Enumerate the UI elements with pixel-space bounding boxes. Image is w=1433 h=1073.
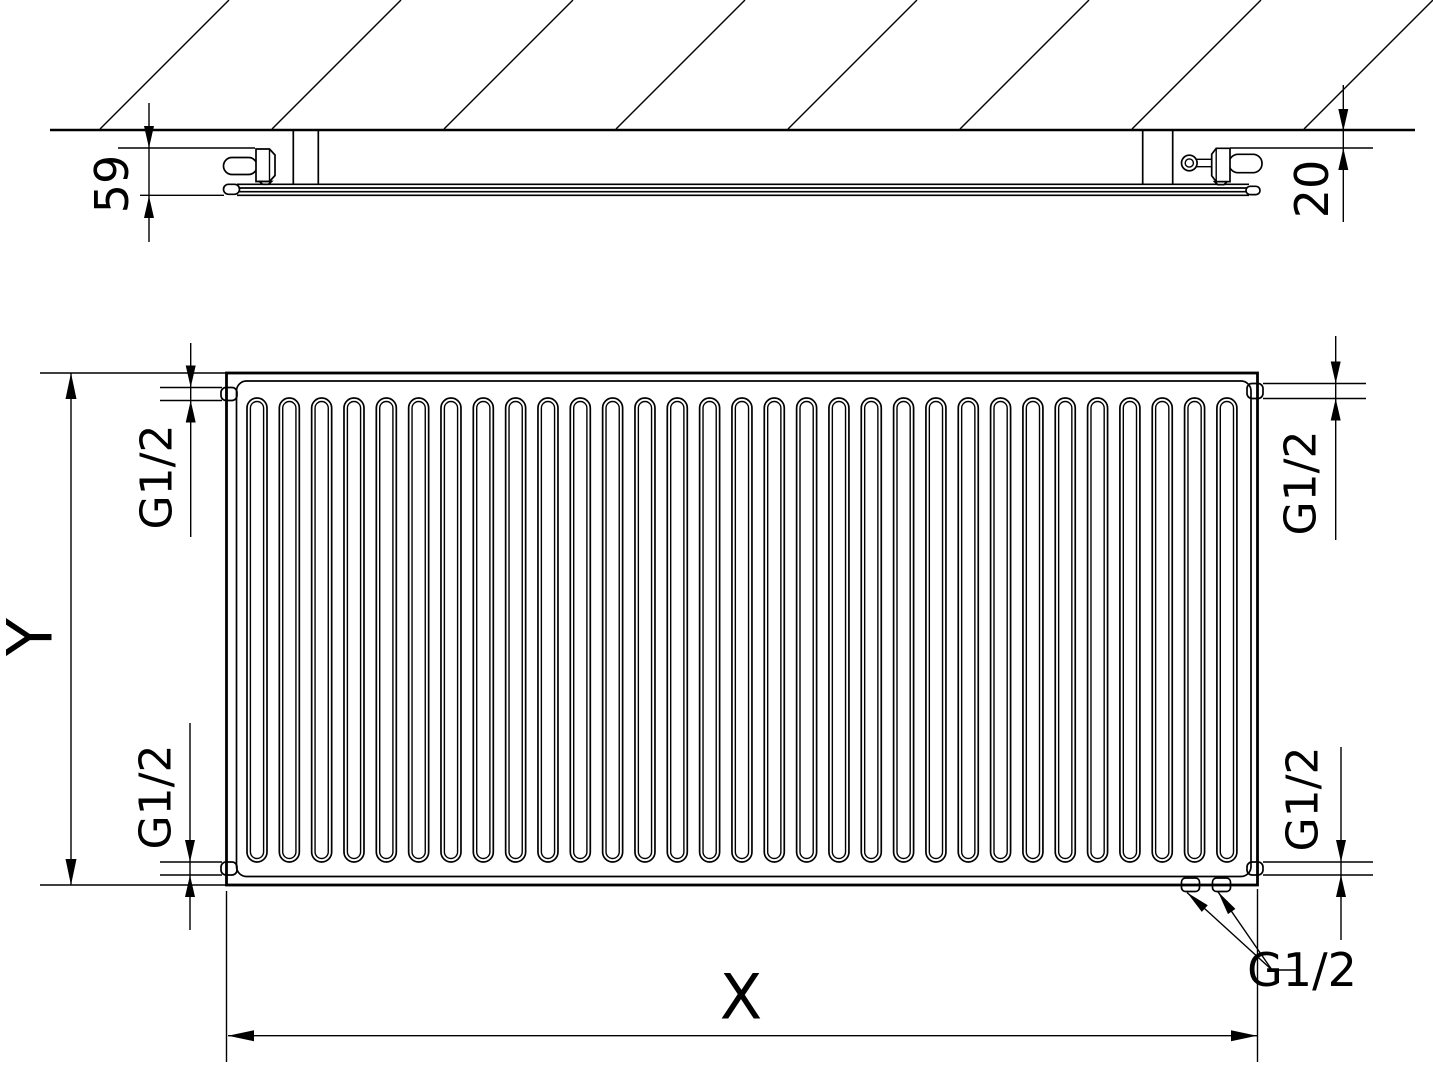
panel-rib-inner [865, 402, 878, 859]
stub-top-left [221, 388, 237, 401]
panel-rib-inner [994, 402, 1007, 859]
left-valve-neck [260, 182, 272, 185]
panel-rib-inner [574, 402, 587, 859]
vent-screw-inner [1185, 159, 1193, 167]
dim-y-arrow-bottom [66, 859, 77, 885]
dim-x-arrow-right [1231, 1030, 1257, 1041]
dim-thread-bottom-left: G1/2 [131, 723, 223, 930]
panel-rib-inner [541, 402, 554, 859]
wall-hatch [100, 0, 1433, 129]
thread-top-right-label: G1/2 [1276, 431, 1327, 536]
panel-left-end-tab [224, 184, 240, 194]
panel-rib-inner [412, 402, 425, 859]
panel-rib-inner [1220, 402, 1233, 859]
panel-rib-inner [380, 402, 393, 859]
dim-20-arrow-top [1338, 109, 1348, 131]
dim-59-arrow-top [144, 126, 154, 148]
panel-right-end-tab [1246, 186, 1260, 194]
dim-thread-bottom-right: G1/2 [1263, 747, 1373, 940]
panel-rib-inner [800, 402, 813, 859]
panel-rib-inner [315, 402, 328, 859]
dim-20-label: 20 [1285, 160, 1339, 219]
panel-rib-inner [347, 402, 360, 859]
front-view: Y X G1/2 G1/2 [0, 336, 1373, 1062]
dim-59-arrow-bottom [144, 196, 154, 218]
panel-rib-inner [768, 402, 781, 859]
thread-bottom-right-label: G1/2 [1278, 747, 1329, 852]
panel-rib-inner [832, 402, 845, 859]
right-bracket [1143, 131, 1173, 184]
right-valve-neck [1215, 182, 1227, 185]
panel-rib-inner [703, 402, 716, 859]
radiator-outline [227, 373, 1258, 885]
panel-rib-inner [1059, 402, 1072, 859]
left-valve [224, 149, 276, 184]
leader-arrow-right [1218, 892, 1235, 914]
right-valve-nut [1212, 148, 1230, 181]
right-valve-body [1229, 154, 1262, 172]
panel-rib-inner [283, 402, 296, 859]
panel-rib-inner [735, 402, 748, 859]
panel-rib-inner [1123, 402, 1136, 859]
dim-59-label: 59 [85, 155, 139, 214]
stub-bottom-left [221, 862, 237, 875]
panel-rib-inner [1091, 402, 1104, 859]
radiator-technical-drawing: 59 20 Y [0, 0, 1433, 1073]
panel-rib-inner [897, 402, 910, 859]
dim-20-arrow-bottom [1338, 148, 1348, 170]
panel-rib-inner [929, 402, 942, 859]
dim-width: X [227, 889, 1258, 1062]
right-valve [1182, 148, 1263, 184]
panel-rib-inner [444, 402, 457, 859]
hatch-line [100, 0, 229, 129]
leader-bottom-connections: G1/2 [1187, 892, 1357, 997]
panel-rib-inner [606, 402, 619, 859]
hatch-line [616, 0, 745, 129]
top-view: 59 20 [50, 0, 1433, 242]
panel-rib-inner [638, 402, 651, 859]
radiator-face [237, 381, 1252, 877]
hatch-line [1132, 0, 1261, 129]
dim-y-arrow-top [66, 373, 77, 399]
panel-rib-inner [509, 402, 522, 859]
thread-bottom-left-label: G1/2 [131, 745, 182, 850]
hatch-line [788, 0, 917, 129]
panel-rib-inner [1026, 402, 1039, 859]
dim-height: Y [0, 373, 227, 885]
hatch-line [444, 0, 573, 129]
hatch-line [272, 0, 401, 129]
panel-rib-inner [962, 402, 975, 859]
left-valve-body [224, 158, 258, 175]
thread-top-left-label: G1/2 [132, 425, 183, 530]
panel-rib-inner [477, 402, 490, 859]
right-valve-stem [1197, 159, 1213, 166]
panel-rib-inner [1188, 402, 1201, 859]
thread-bottom-connections-label: G1/2 [1247, 943, 1357, 997]
dim-y-label: Y [0, 618, 67, 657]
panel-rib-inner [671, 402, 684, 859]
hatch-line [1304, 0, 1433, 129]
panel-rib-inner [250, 402, 263, 859]
dim-x-arrow-left [228, 1030, 254, 1041]
dim-thread-top-right: G1/2 [1263, 336, 1366, 540]
dim-x-label: X [720, 961, 762, 1034]
panel-section [224, 184, 1261, 195]
left-bracket [293, 131, 318, 184]
hatch-line [960, 0, 1089, 129]
panel-rib-inner [1156, 402, 1169, 859]
dim-thread-top-left: G1/2 [132, 343, 223, 537]
left-valve-nut [256, 149, 275, 182]
panel-ribs [247, 398, 1237, 862]
